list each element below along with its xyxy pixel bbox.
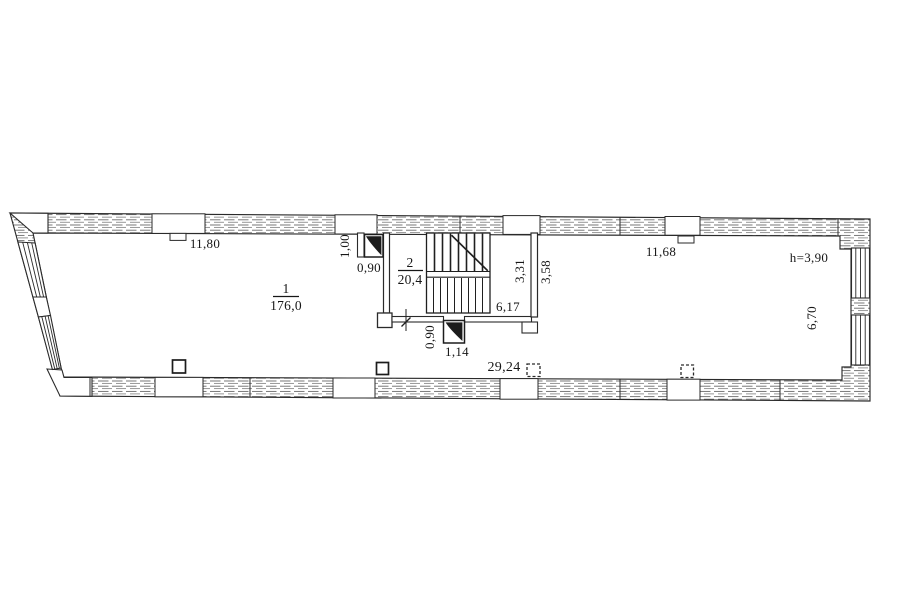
column-1: [173, 360, 186, 373]
stairs-upper-flight: [435, 234, 483, 272]
ceiling-height-note: h=3,90: [790, 250, 828, 265]
stair-right-wall-step: [522, 322, 538, 333]
room2-area: 20,4: [398, 272, 423, 287]
top-window-3: [503, 216, 540, 235]
floor-plan-page: 11,80 11,68 h=3,90 1 176,0 2 20,4 1,00 0…: [0, 0, 900, 604]
column-2: [377, 363, 389, 375]
stair-left-wall-foot: [378, 313, 393, 328]
bottom-window-1: [155, 377, 203, 396]
floor-plan-drawing: 11,80 11,68 h=3,90 1 176,0 2 20,4 1,00 0…: [0, 0, 900, 604]
room1-area: 176,0: [270, 298, 302, 313]
stair-left-wall: [384, 233, 390, 313]
stair-right-wall: [531, 233, 538, 317]
stair-door-stub-wall: [358, 233, 365, 257]
column-3: [527, 364, 540, 377]
dim-bottom-door-clear: 0,90: [422, 325, 437, 349]
left-wall-windows: [18, 242, 61, 370]
room2-label: 2 20,4: [398, 255, 423, 287]
dim-top-right-wall: 11,68: [646, 244, 676, 259]
dim-top-left-wall: 11,80: [190, 236, 220, 251]
dim-bottom-wall-length: 29,24: [488, 360, 521, 375]
dim-stair-door-clear: 0,90: [357, 260, 381, 275]
dim-right-room-depth: 6,70: [804, 306, 819, 330]
bottom-window-4: [667, 379, 700, 400]
dim-stair-inner-width: 3,31: [512, 259, 527, 283]
dim-stair-door-height: 1,00: [337, 234, 352, 258]
stair-bottom-wall-right: [465, 317, 532, 323]
dim-stair-length: 6,17: [496, 299, 520, 314]
dim-stair-outer-width: 3,58: [538, 260, 553, 284]
bottom-window-2: [333, 378, 375, 398]
bottom-left-corner-wall: [47, 369, 92, 396]
stair-bottom-wall-left: [392, 317, 444, 323]
room2-number: 2: [406, 255, 413, 270]
door-top: [365, 235, 384, 258]
room1-number: 1: [282, 281, 289, 296]
staircase: [427, 233, 491, 313]
column-4: [681, 365, 694, 378]
dim-bottom-door-width: 1,14: [445, 344, 469, 359]
bottom-window-3: [500, 379, 538, 400]
door-bottom: [444, 321, 465, 344]
top-wall-pilaster-2: [678, 236, 694, 243]
left-wall-pier: [33, 297, 51, 317]
top-window-2: [335, 215, 377, 234]
top-window-4: [665, 217, 700, 236]
room1-label: 1 176,0: [270, 281, 302, 313]
top-window-1: [152, 214, 205, 234]
top-wall-pilaster-1: [170, 233, 186, 240]
